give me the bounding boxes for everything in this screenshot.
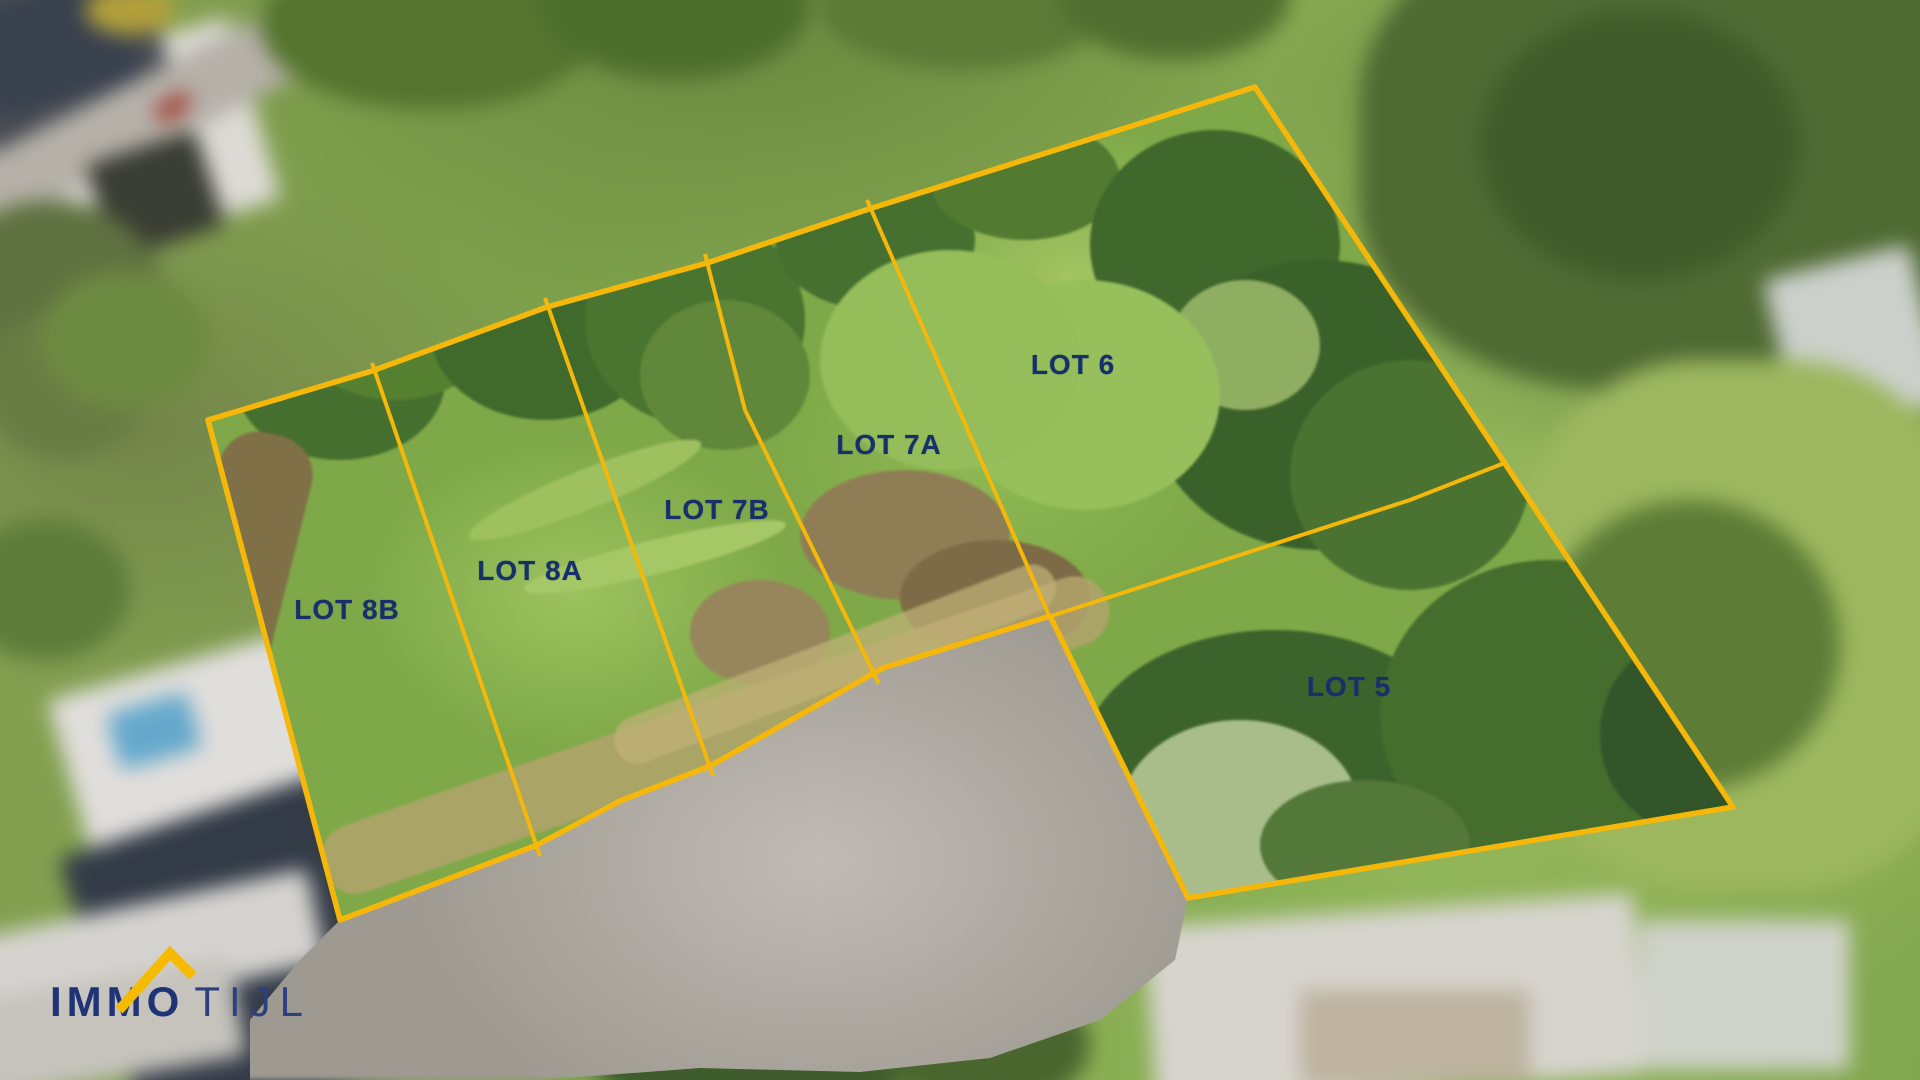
lot-divider-line-3 [867, 200, 1051, 620]
lot-label-6: LOT 6 [1031, 349, 1115, 381]
lot-divider-line-2 [705, 254, 879, 684]
logo-roof-icon [50, 938, 330, 1030]
lot-label-7b: LOT 7B [664, 494, 770, 526]
lot-label-8a: LOT 8A [477, 555, 583, 587]
lot-label-5: LOT 5 [1307, 671, 1391, 703]
lot-label-7a: LOT 7A [836, 429, 942, 461]
lot-divider-line-4 [1048, 462, 1507, 617]
parcel-boundary-overlay [0, 0, 1920, 1080]
aerial-lot-map: LOT 8BLOT 8ALOT 7BLOT 7ALOT 6LOT 5 IMMOT… [0, 0, 1920, 1080]
outer-boundary-line [208, 87, 1733, 920]
lot-divider-line-1 [545, 298, 713, 776]
lot-label-8b: LOT 8B [294, 594, 400, 626]
immo-tijl-logo: IMMOTIJL [50, 938, 330, 1030]
